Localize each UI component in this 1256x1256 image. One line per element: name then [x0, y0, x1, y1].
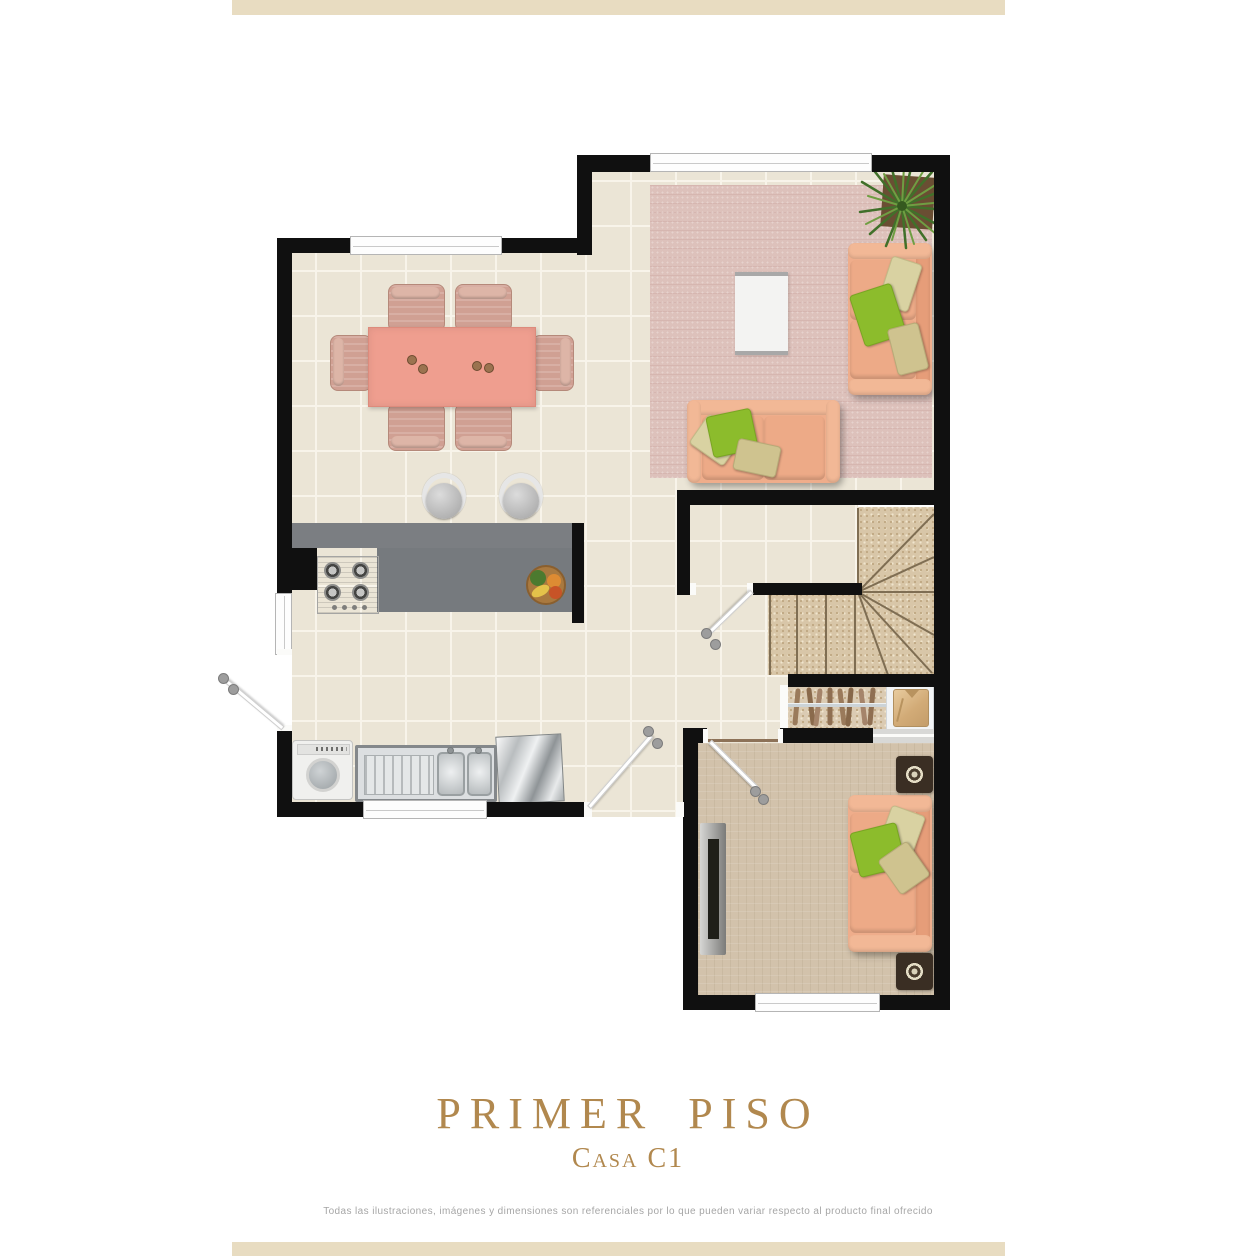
wall: [677, 505, 690, 595]
door-handle: [758, 794, 769, 805]
window: [755, 993, 880, 1012]
dining-chair: [455, 403, 512, 451]
wall: [683, 728, 698, 1010]
fruit-bowl: [526, 565, 566, 605]
table-setting: [484, 363, 494, 373]
wall: [780, 728, 873, 743]
door-jamb: [676, 802, 684, 817]
poster-canvas: PRIMER PISO Casa C1 Todas las ilustracio…: [0, 0, 1256, 1256]
wall: [487, 802, 584, 817]
stove: [317, 556, 379, 614]
door-jamb: [277, 649, 292, 655]
dining-chair: [532, 335, 574, 391]
dining-chair: [455, 284, 512, 332]
table-setting: [407, 355, 417, 365]
wall: [277, 802, 363, 817]
washing-machine: [292, 740, 353, 800]
wall: [788, 674, 950, 687]
table-setting: [472, 361, 482, 371]
window: [650, 153, 872, 172]
bar-stool: [421, 472, 467, 522]
sink-bowl: [437, 752, 465, 796]
tv-sofa: [848, 795, 932, 952]
metal-board: [495, 733, 564, 804]
speaker: [896, 756, 933, 793]
drainboard: [364, 755, 434, 795]
wall: [753, 583, 862, 595]
tv-screen: [708, 839, 719, 939]
door-handle: [643, 726, 654, 737]
wall: [934, 155, 950, 1010]
living-sofa-vertical: [848, 243, 932, 395]
floor-plan: [0, 0, 1256, 1256]
page-subtitle: Casa C1: [0, 1143, 1256, 1175]
closet-front-panel: [873, 729, 934, 743]
wall: [277, 238, 292, 595]
doorway-lintel: [707, 739, 780, 742]
wall: [572, 523, 584, 623]
door-jamb: [703, 729, 708, 743]
dining-chair: [330, 335, 372, 391]
bar-stool: [498, 472, 544, 522]
window: [350, 236, 502, 255]
door-handle: [228, 684, 239, 695]
folded-shirt: [893, 689, 929, 727]
wall: [292, 548, 317, 590]
faucet: [475, 747, 482, 754]
door-jamb: [778, 729, 783, 743]
closet-shelf: [886, 683, 934, 730]
table-setting: [418, 364, 428, 374]
speaker: [896, 953, 933, 990]
door-handle: [710, 639, 721, 650]
coffee-table: [735, 272, 788, 355]
page-title: PRIMER PISO: [0, 1088, 1256, 1139]
window: [363, 800, 487, 819]
closet-side-panel: [780, 685, 788, 728]
faucet: [447, 747, 454, 754]
disclaimer-text: Todas las ilustraciones, imágenes y dime…: [0, 1206, 1256, 1217]
dining-chair: [388, 284, 445, 332]
door-handle: [218, 673, 229, 684]
dining-table: [368, 327, 536, 407]
kitchen-sink: [355, 745, 497, 802]
wall: [677, 490, 950, 505]
living-sofa-horizontal: [687, 400, 840, 483]
sink-bowl: [467, 752, 492, 796]
door-handle: [652, 738, 663, 749]
tv-panel: [700, 823, 726, 955]
door-jamb: [690, 583, 696, 595]
dining-chair: [388, 403, 445, 451]
closet-hanging-clothes: [788, 683, 886, 730]
kitchen-counter: [292, 523, 572, 548]
window: [275, 593, 292, 655]
door-handle: [701, 628, 712, 639]
